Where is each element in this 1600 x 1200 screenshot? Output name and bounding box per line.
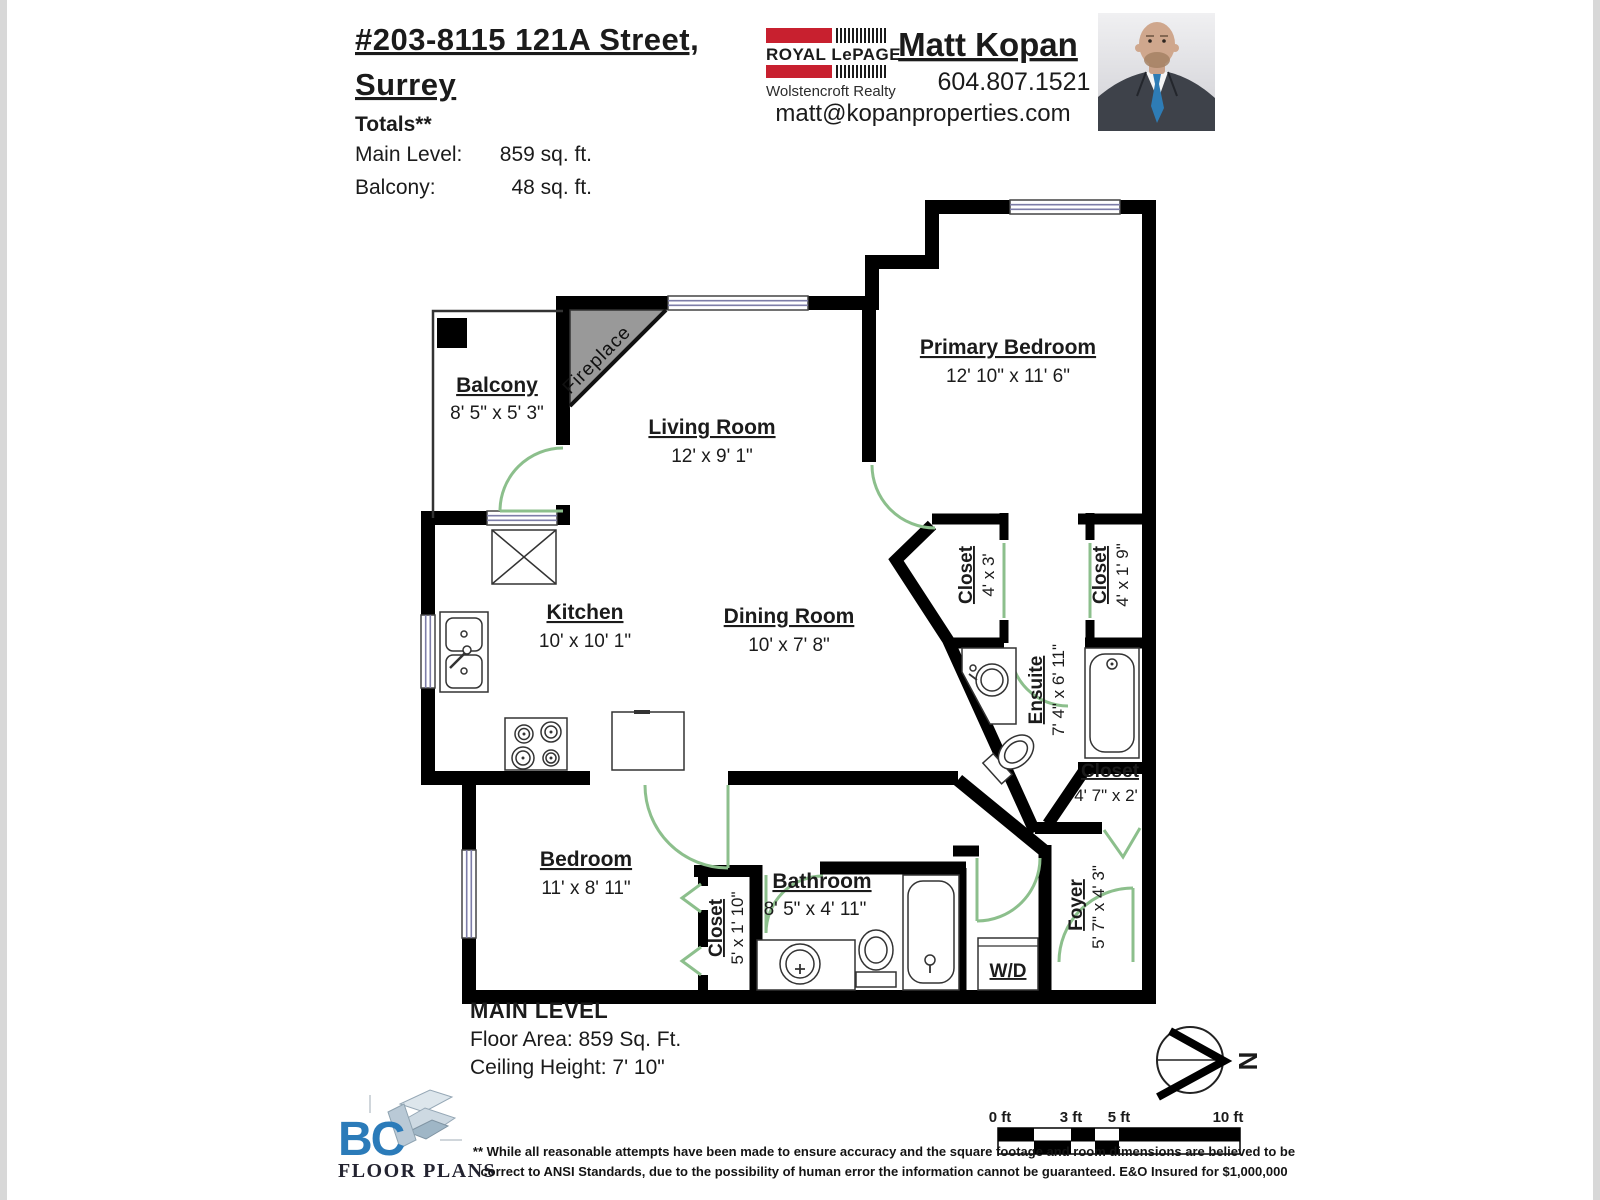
level-title: MAIN LEVEL — [470, 998, 608, 1023]
plan-labels: Balcony 8' 5" x 5' 3" Living Room 12' x … — [450, 336, 1140, 965]
agent-block: ROYAL LePAGE Wolstencroft Realty Matt Ko… — [766, 13, 1215, 131]
bc-logo-initials: BC — [338, 1113, 405, 1166]
window — [487, 511, 557, 525]
room-dims-balcony: 8' 5" x 5' 3" — [450, 403, 544, 424]
header-block: #203-8115 121A Street, Surrey Totals** M… — [355, 22, 699, 199]
north-label: N — [1233, 1052, 1263, 1071]
north-arrow-icon — [1158, 1031, 1224, 1097]
kitchen-island — [612, 712, 684, 770]
room-dims-closet-bedroom: 5' x 1' 10" — [728, 891, 747, 964]
room-dims-living: 12' x 9' 1" — [671, 446, 753, 467]
room-name-closet1: Closet — [956, 545, 977, 604]
disclaimer-line2: correct to ANSI Standards, due to the po… — [480, 1164, 1287, 1179]
ensuite-sink — [962, 648, 1016, 724]
room-name-ensuite: Ensuite — [1026, 656, 1047, 725]
room-dims-closet2: 4' x 1' 9" — [1113, 543, 1132, 607]
wd-label: W/D — [990, 961, 1027, 982]
room-name-bathroom: Bathroom — [772, 870, 871, 893]
totals-row-value: 859 sq. ft. — [500, 143, 592, 166]
closet-bifold-hall — [1104, 828, 1140, 857]
balcony-door — [500, 448, 563, 511]
room-name-closet-hall: Closet — [1081, 761, 1140, 782]
beard — [1144, 52, 1170, 68]
logo-stripes-bottom — [836, 65, 887, 78]
washer-dryer: W/D — [978, 938, 1038, 990]
bc-logo-name: FLOOR PLANS — [338, 1160, 496, 1182]
compass: N — [1157, 1027, 1263, 1097]
plan-fixtures: W/D — [440, 530, 1139, 990]
floor-area: Floor Area: 859 Sq. Ft. — [470, 1028, 681, 1051]
room-name-kitchen: Kitchen — [546, 601, 623, 624]
room-name-closet-bedroom: Closet — [706, 898, 727, 957]
window — [462, 850, 476, 938]
bedroom-door — [645, 785, 728, 868]
floor-plan-canvas: #203-8115 121A Street, Surrey Totals** M… — [0, 0, 1600, 1200]
room-name-living: Living Room — [648, 416, 775, 439]
floor-plan-page: #203-8115 121A Street, Surrey Totals** M… — [0, 0, 1600, 1200]
address-line1: #203-8115 121A Street, — [355, 22, 699, 57]
logo-stripes-top — [836, 28, 887, 43]
totals-row-label: Main Level: — [355, 143, 462, 166]
scale-label-3: 3 ft — [1060, 1109, 1083, 1126]
bathroom-sink — [757, 940, 855, 990]
disclaimer-line1: ** While all reasonable attempts have be… — [473, 1144, 1295, 1159]
window — [421, 615, 435, 688]
agent-headshot — [1098, 13, 1215, 131]
scale-label-10: 10 ft — [1213, 1109, 1244, 1126]
logo-red-bar-top — [766, 28, 832, 43]
window — [668, 296, 808, 310]
room-dims-kitchen: 10' x 10' 1" — [539, 631, 631, 652]
room-dims-primary: 12' 10" x 11' 6" — [946, 366, 1070, 387]
room-dims-bathroom: 8' 5" x 4' 11" — [764, 899, 867, 920]
ceiling-height: Ceiling Height: 7' 10" — [470, 1056, 665, 1079]
right-edge-strip — [1593, 0, 1600, 1200]
brand-name: ROYAL LePAGE — [766, 45, 901, 64]
brokerage-name: Wolstencroft Realty — [766, 83, 896, 100]
wall-closet-jambs — [1004, 513, 1090, 643]
address-line2: Surrey — [355, 67, 456, 102]
bc-floor-plans-logo: BC FLOOR PLANS — [338, 1090, 496, 1182]
agent-name: Matt Kopan — [898, 26, 1078, 63]
kitchen-sink — [440, 612, 488, 692]
scale-label-5: 5 ft — [1108, 1109, 1131, 1126]
room-name-primary: Primary Bedroom — [920, 336, 1096, 359]
footer-block: MAIN LEVEL Floor Area: 859 Sq. Ft. Ceili… — [470, 998, 681, 1079]
room-name-bedroom: Bedroom — [540, 848, 632, 871]
room-dims-closet-hall: 4' 7" x 2' — [1074, 786, 1138, 805]
room-dims-ensuite: 7' 4" x 6' 11" — [1049, 644, 1068, 736]
totals-label: Totals** — [355, 113, 432, 136]
fireplace: Fireplace — [559, 310, 666, 406]
ensuite-tub — [1085, 648, 1139, 758]
room-dims-foyer: 5' 7" x 4' 3" — [1089, 865, 1108, 949]
room-dims-dining: 10' x 7' 8" — [748, 635, 830, 656]
primary-bedroom-door — [872, 465, 935, 528]
balcony-post — [437, 318, 467, 348]
window — [1010, 200, 1120, 214]
room-dims-closet1: 4' x 3' — [979, 553, 998, 596]
wd-door — [977, 858, 1040, 921]
agent-phone: 604.807.1521 — [938, 68, 1091, 96]
room-name-closet2: Closet — [1090, 545, 1111, 604]
agent-email: matt@kopanproperties.com — [775, 100, 1070, 127]
room-dims-bedroom: 11' x 8' 11" — [541, 878, 630, 899]
bathroom-toilet — [856, 930, 896, 987]
totals-row-label: Balcony: — [355, 176, 436, 199]
stove — [505, 718, 567, 770]
disclaimer: ** While all reasonable attempts have be… — [473, 1144, 1295, 1179]
fridge — [492, 530, 556, 584]
room-name-balcony: Balcony — [456, 374, 538, 397]
room-name-foyer: Foyer — [1066, 879, 1087, 931]
scale-label-0: 0 ft — [989, 1109, 1012, 1126]
royal-lepage-logo: ROYAL LePAGE Wolstencroft Realty — [766, 28, 901, 100]
left-edge-strip — [0, 0, 7, 1200]
logo-red-bar-bottom — [766, 65, 832, 78]
room-name-dining: Dining Room — [724, 605, 855, 628]
totals-row-value: 48 sq. ft. — [511, 176, 592, 199]
bathroom-tub — [903, 875, 959, 990]
